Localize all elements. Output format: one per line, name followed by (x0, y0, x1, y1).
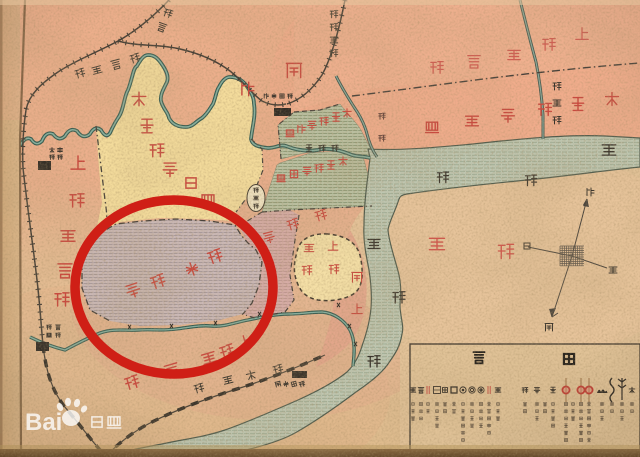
svg-text:Bai: Bai (25, 409, 62, 436)
